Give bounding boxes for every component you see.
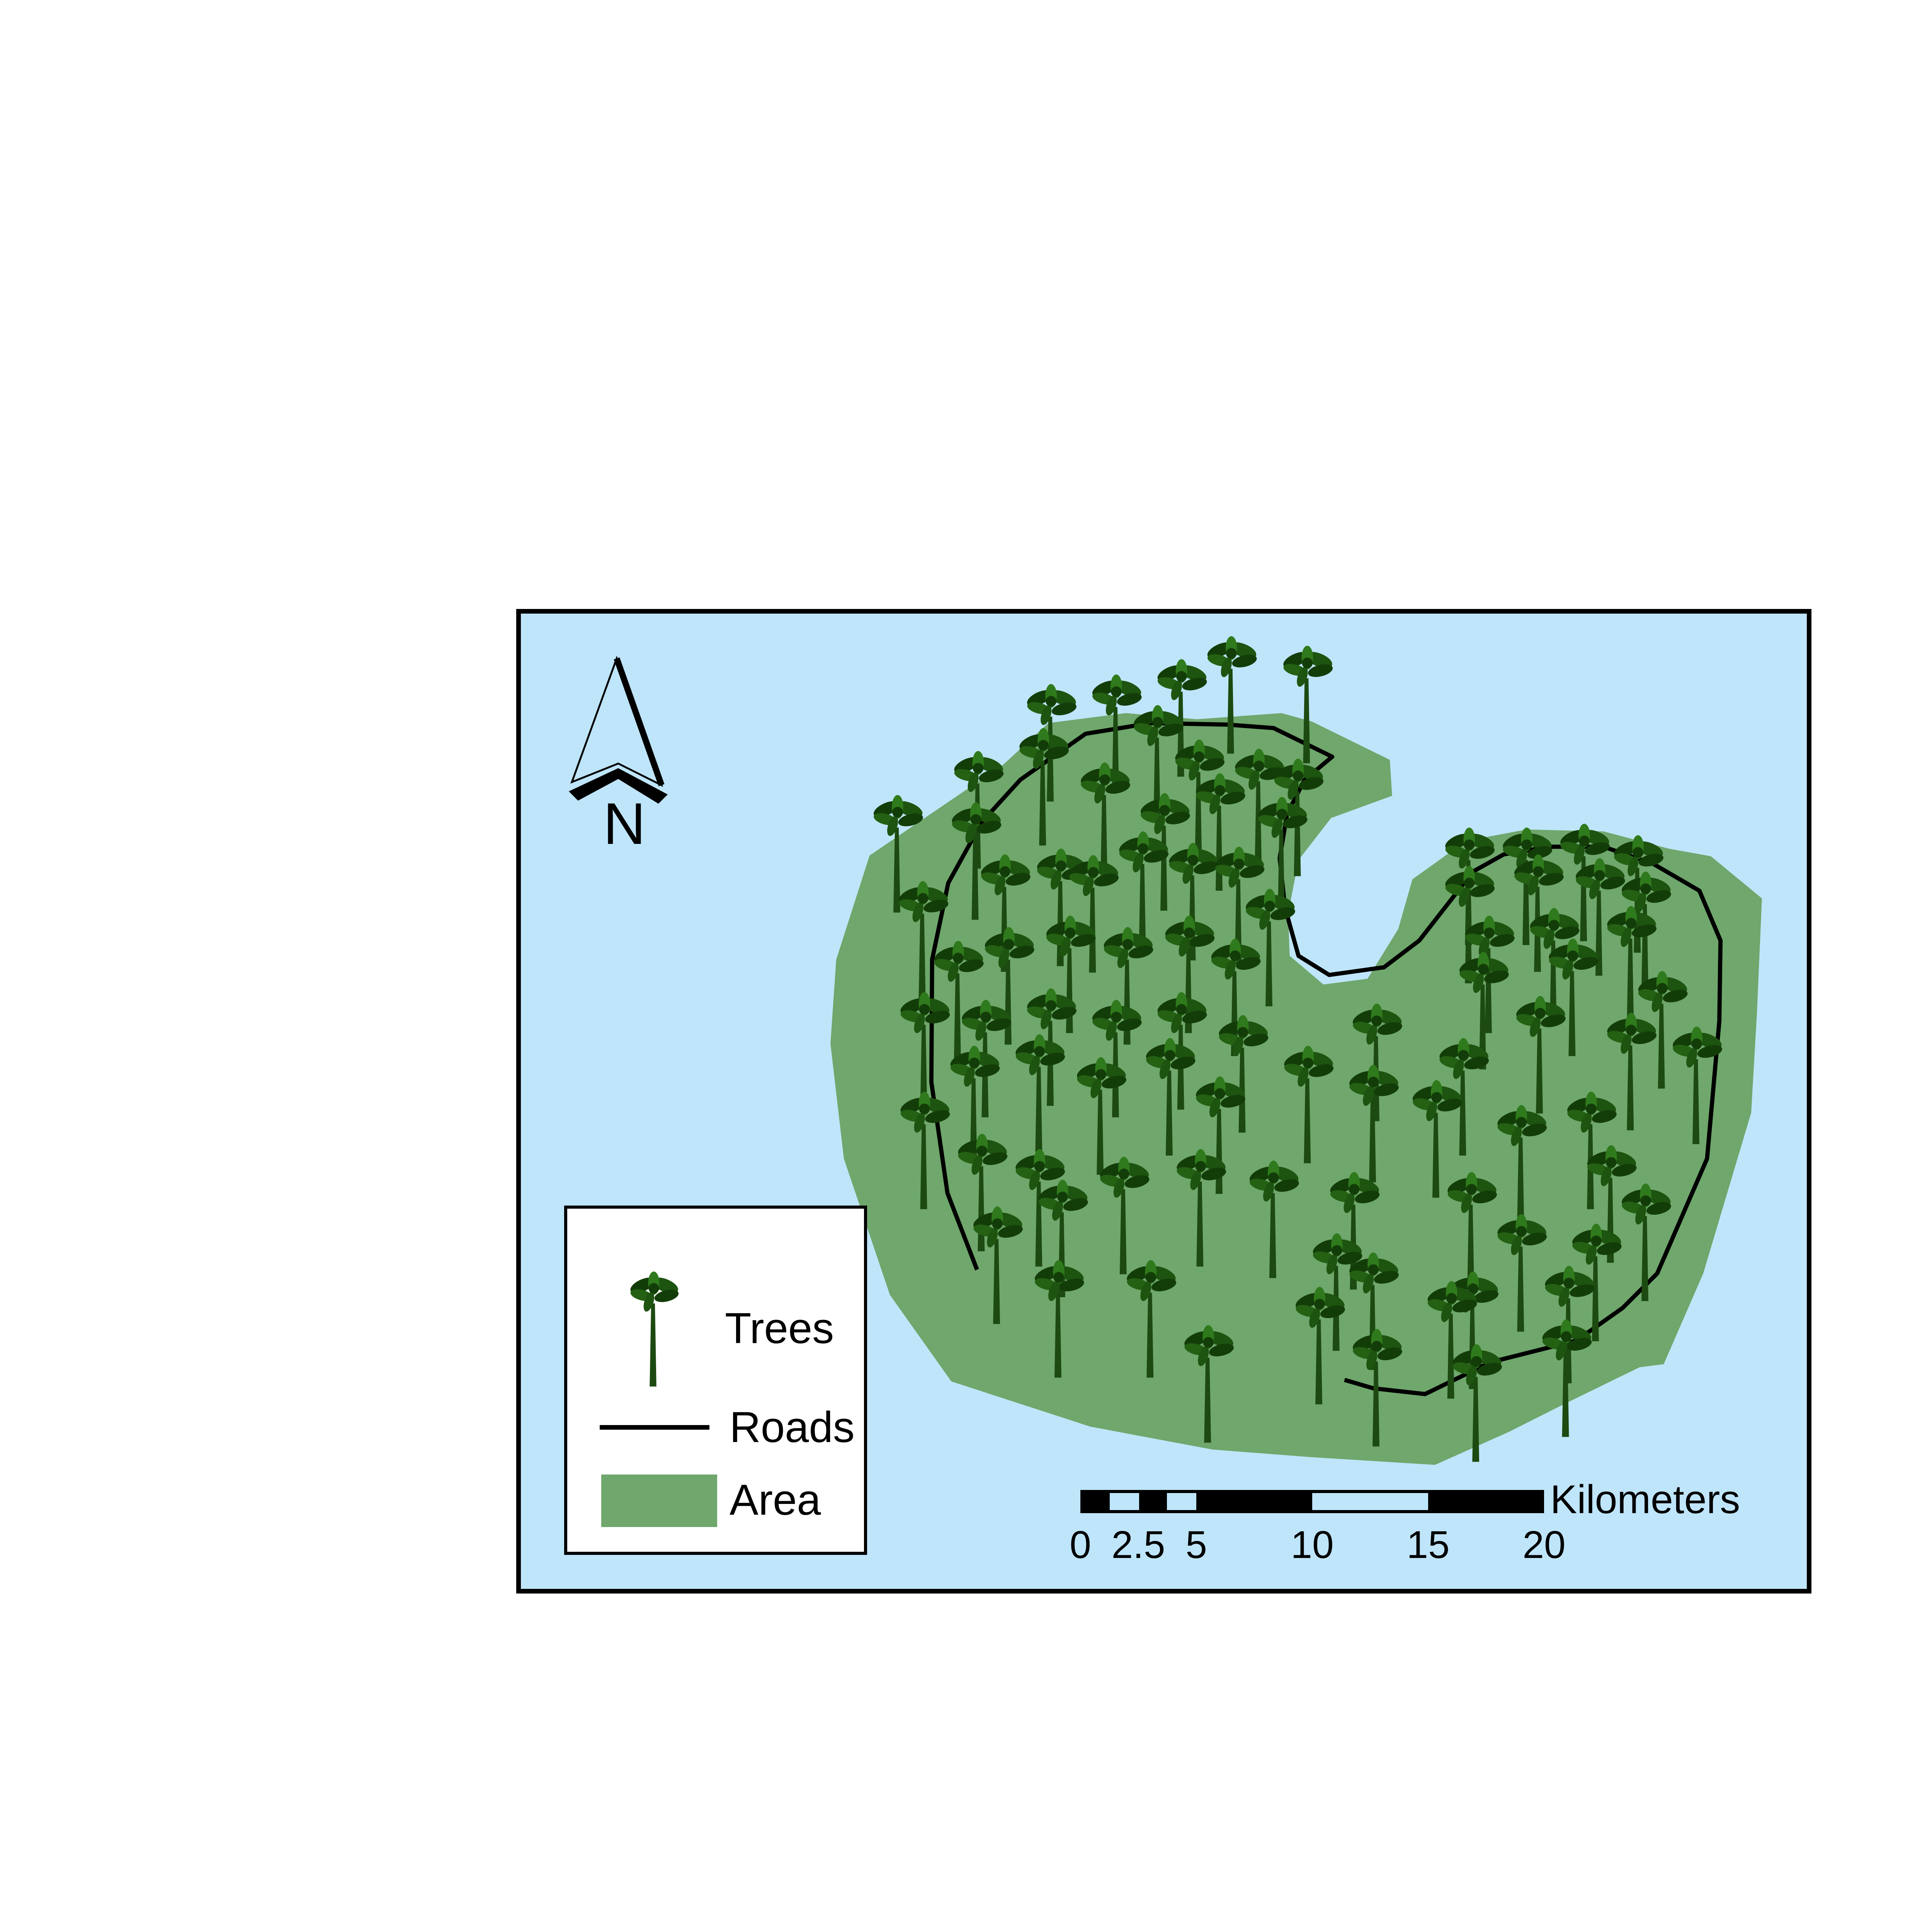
north-arrow-label: N [573,794,675,856]
road-symbol-line [600,1425,709,1430]
scale-bar-tick-labels: 02.55101520 [1003,1524,1652,1570]
scale-bar-gap-segment [1167,1493,1196,1510]
scale-bar-unit-label: Kilometers [1550,1476,1740,1524]
area-symbol-swatch [601,1475,717,1527]
scale-bar-gap-segment [1109,1493,1138,1510]
scale-bar [1080,1490,1544,1513]
legend-item-roads: Roads [730,1406,855,1450]
north-arrow-icon [569,655,671,804]
scale-bar-tick-label: 20 [1467,1524,1621,1569]
tree-symbol-icon [628,1267,680,1391]
scale-bar-gap-segment [1312,1493,1428,1510]
legend-item-trees: Trees [725,1308,834,1351]
legend: Trees Roads Area [564,1206,867,1555]
map-document-page: N Trees Roads Area 02.55101520 Kilometer… [0,0,1932,1932]
legend-item-area: Area [730,1479,821,1522]
